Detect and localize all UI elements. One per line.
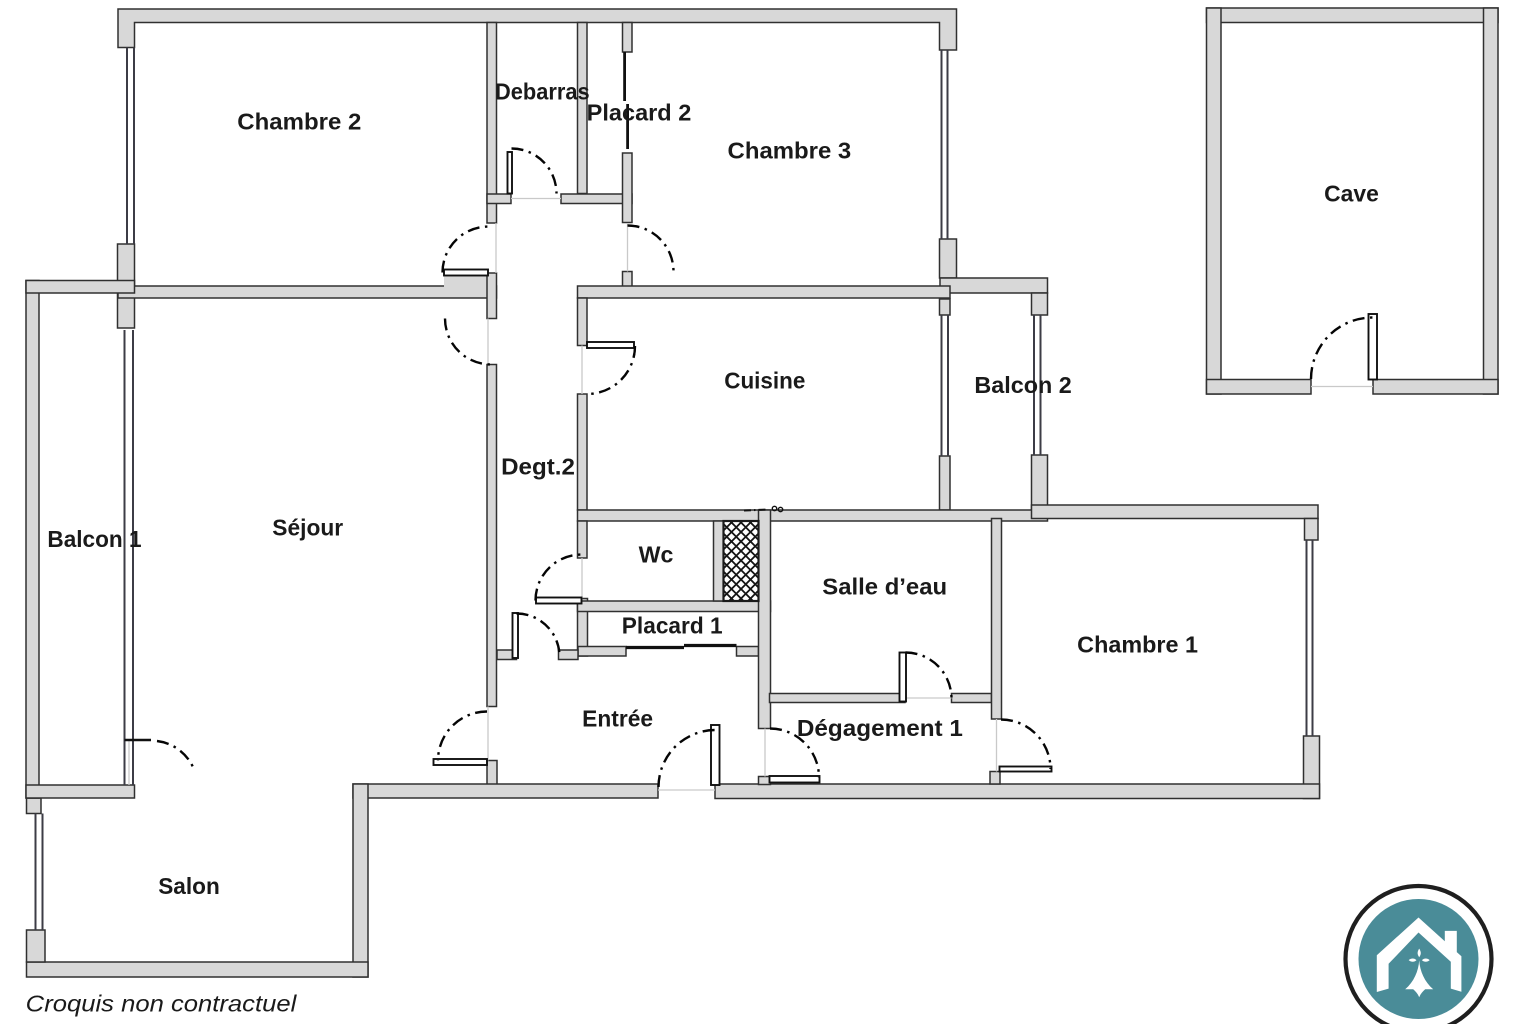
svg-text:Croquis non contractuel: Croquis non contractuel: [26, 990, 298, 1016]
svg-text:Wc: Wc: [639, 542, 674, 568]
svg-text:Balcon 2: Balcon 2: [974, 372, 1071, 398]
svg-text:Degt.2: Degt.2: [501, 454, 575, 480]
svg-text:Placard 2: Placard 2: [587, 100, 692, 126]
svg-text:Entrée: Entrée: [582, 706, 653, 732]
svg-text:Cuisine: Cuisine: [724, 367, 805, 393]
svg-text:Balcon 1: Balcon 1: [47, 526, 141, 552]
svg-text:Debarras: Debarras: [495, 78, 590, 104]
svg-text:Dégagement 1: Dégagement 1: [797, 715, 963, 741]
svg-text:Placard 1: Placard 1: [622, 612, 723, 638]
svg-text:Salon: Salon: [158, 873, 220, 899]
svg-text:Chambre 2: Chambre 2: [237, 108, 361, 134]
svg-text:Séjour: Séjour: [272, 514, 343, 540]
svg-text:Salle d’eau: Salle d’eau: [822, 574, 947, 600]
svg-text:Chambre 1: Chambre 1: [1077, 632, 1198, 658]
svg-text:Cave: Cave: [1324, 180, 1379, 206]
svg-text:Chambre 3: Chambre 3: [728, 138, 852, 164]
